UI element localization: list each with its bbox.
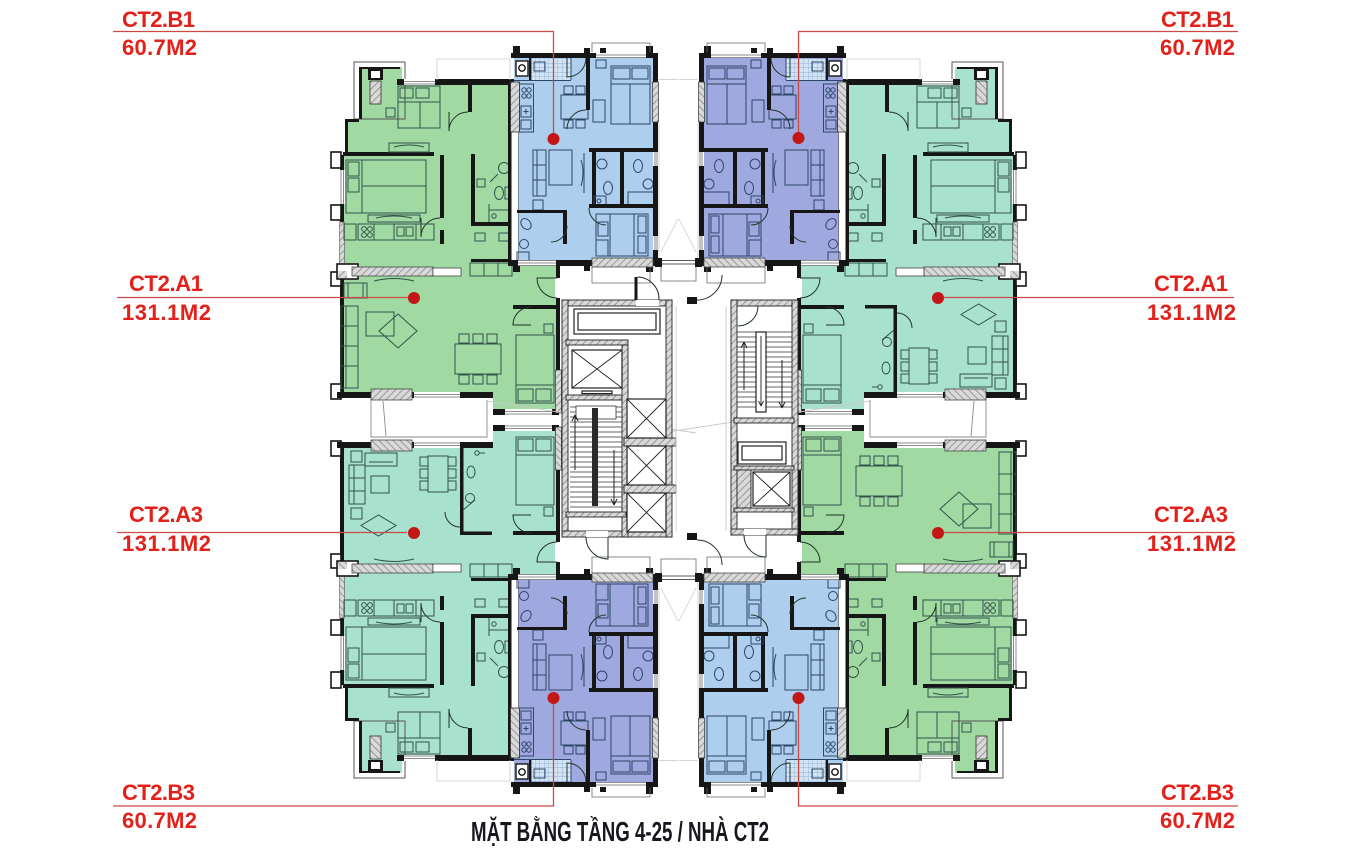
svg-text:CT2.B3: CT2.B3 — [122, 780, 195, 805]
svg-text:CT2.A3: CT2.A3 — [1154, 502, 1228, 527]
svg-text:CT2.A1: CT2.A1 — [1154, 271, 1228, 296]
svg-text:CT2.B1: CT2.B1 — [1161, 7, 1234, 32]
svg-text:CT2.A1: CT2.A1 — [129, 271, 203, 296]
svg-text:CT2.B3: CT2.B3 — [1161, 780, 1234, 805]
svg-text:60.7M2: 60.7M2 — [122, 35, 197, 60]
svg-text:60.7M2: 60.7M2 — [122, 808, 197, 833]
svg-text:131.1M2: 131.1M2 — [1147, 531, 1236, 556]
svg-text:CT2.A3: CT2.A3 — [129, 502, 203, 527]
svg-text:CT2.B1: CT2.B1 — [122, 7, 195, 32]
svg-text:60.7M2: 60.7M2 — [1160, 808, 1235, 833]
svg-text:131.1M2: 131.1M2 — [122, 531, 211, 556]
svg-text:131.1M2: 131.1M2 — [122, 300, 211, 325]
svg-text:60.7M2: 60.7M2 — [1160, 35, 1235, 60]
svg-text:MẶT BẰNG TẦNG 4-25 / NHÀ CT2: MẶT BẰNG TẦNG 4-25 / NHÀ CT2 — [471, 816, 769, 847]
svg-text:131.1M2: 131.1M2 — [1147, 300, 1236, 325]
